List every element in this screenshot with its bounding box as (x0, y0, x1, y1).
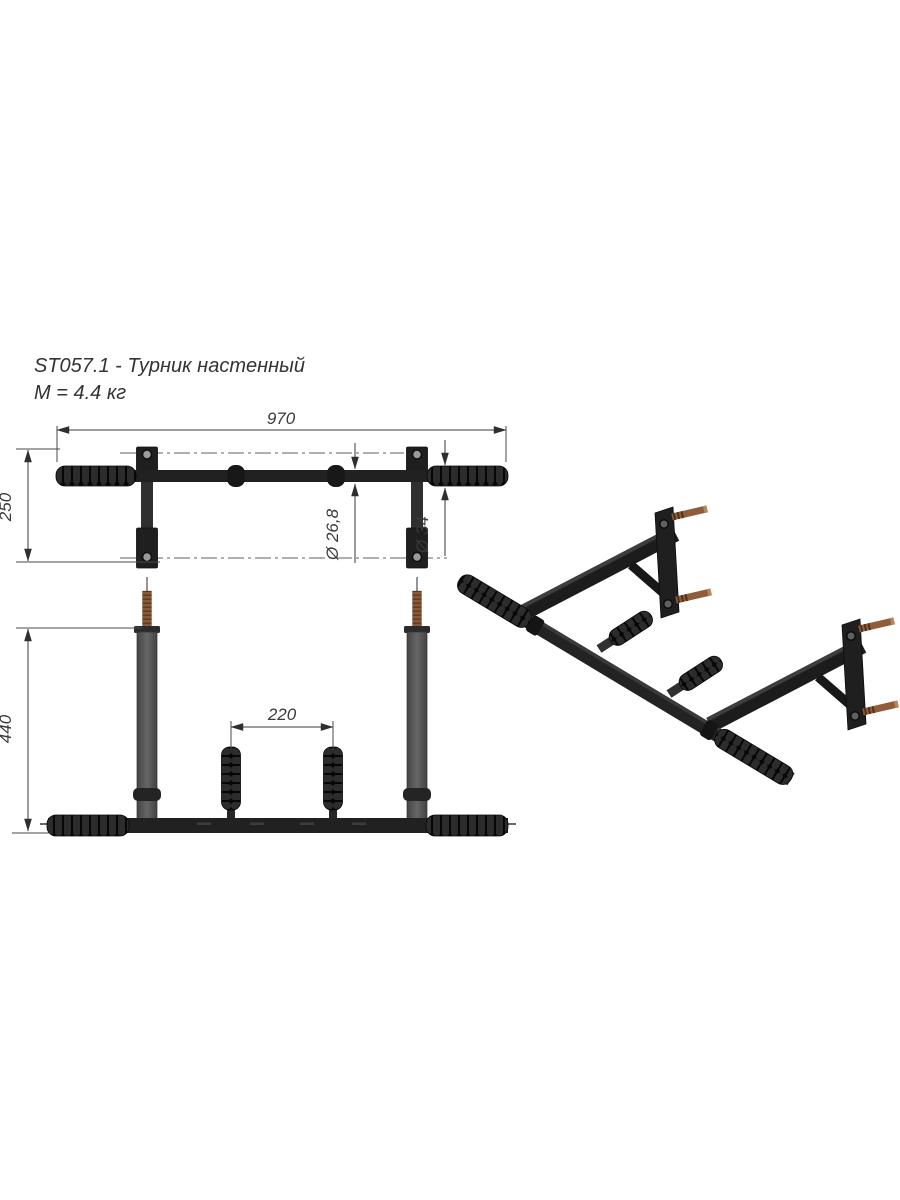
drawing-page: ST057.1 - Турник настенный М = 4.4 кг 97… (0, 0, 900, 1200)
dim-220-label: 220 (267, 705, 297, 724)
narrow-grip-right (324, 747, 343, 820)
front-elevation-view: 970 250 Ø 26,8 Ø 34 (0, 409, 508, 568)
dim-970-label: 970 (267, 409, 296, 428)
narrow-grip-left (222, 747, 241, 820)
dim-handle-spacing: 220 (231, 705, 333, 750)
dim-bar-diameter: Ø 26,8 (323, 443, 355, 563)
dim-440-label: 440 (0, 714, 15, 743)
iso-narrow-grip-left (594, 608, 655, 656)
dim-250-label: 250 (0, 492, 15, 522)
dim-26-8-label: Ø 26,8 (323, 508, 342, 561)
hanger-post-left (133, 577, 161, 820)
hanger-post-right (403, 577, 431, 820)
iso-bracket-near (519, 505, 712, 620)
iso-narrow-grip-right (664, 653, 725, 701)
iso-bracket-far (706, 617, 899, 732)
technical-drawing: ST057.1 - Турник настенный М = 4.4 кг 97… (0, 0, 900, 1200)
model-title: ST057.1 - Турник настенный (34, 355, 305, 377)
main-bar-top (56, 465, 508, 487)
isometric-view (454, 505, 899, 787)
dim-overall-width: 970 (57, 409, 506, 462)
wall-bracket-left (137, 447, 158, 568)
dim-arm-length: 440 (0, 628, 142, 833)
plan-view: 440 220 (0, 577, 516, 836)
iso-main-bar (454, 571, 796, 787)
dim-34-label: Ø 34 (413, 516, 432, 554)
title-block: ST057.1 - Турник настенный М = 4.4 кг (34, 355, 305, 404)
mass-label: М = 4.4 кг (34, 382, 126, 404)
main-bar-front (40, 815, 516, 836)
